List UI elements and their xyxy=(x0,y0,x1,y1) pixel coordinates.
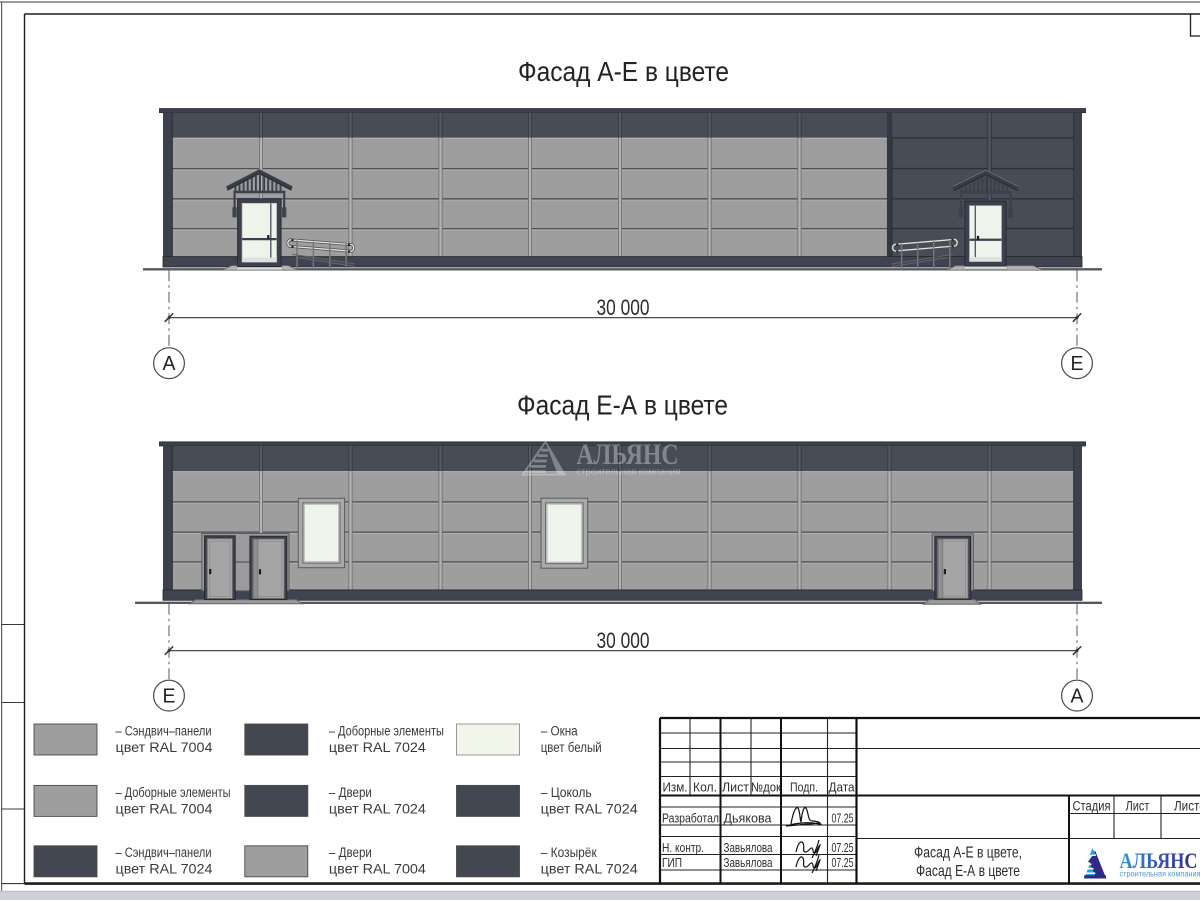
svg-text:07.25: 07.25 xyxy=(832,841,854,855)
svg-text:07.25: 07.25 xyxy=(832,856,854,870)
svg-text:30 000: 30 000 xyxy=(597,295,650,320)
svg-text:цвет RAL 7024: цвет RAL 7024 xyxy=(329,801,427,816)
svg-text:цвет RAL 7004: цвет RAL 7004 xyxy=(116,801,214,816)
svg-text:№док: №док xyxy=(751,779,781,794)
svg-text:цвет RAL 7004: цвет RAL 7004 xyxy=(329,862,427,877)
svg-text:– Двери: – Двери xyxy=(329,845,372,860)
svg-text:Фасад Е-А в цвете: Фасад Е-А в цвете xyxy=(517,390,728,421)
svg-text:Фасад А-Е в цвете,: Фасад А-Е в цвете, xyxy=(914,845,1022,862)
svg-text:Дата: Дата xyxy=(829,779,856,794)
svg-text:цвет RAL 7024: цвет RAL 7024 xyxy=(541,862,639,877)
svg-text:Листов: Листов xyxy=(1174,798,1200,813)
svg-text:цвет RAL 7024: цвет RAL 7024 xyxy=(541,801,639,816)
svg-text:– Сэндвич–панели: – Сэндвич–панели xyxy=(116,845,212,860)
svg-text:цвет RAL 7004: цвет RAL 7004 xyxy=(116,740,214,755)
svg-text:– Окна: – Окна xyxy=(541,723,578,738)
svg-text:ГИП: ГИП xyxy=(662,856,682,870)
svg-text:Завьялова: Завьялова xyxy=(724,841,773,855)
svg-text:цвет RAL 7024: цвет RAL 7024 xyxy=(329,740,427,755)
svg-text:строительная компания: строительная компания xyxy=(577,467,681,477)
svg-text:Фасад А-Е в цвете: Фасад А-Е в цвете xyxy=(518,56,729,87)
svg-text:– Доборные элементы: – Доборные элементы xyxy=(116,785,231,800)
svg-text:цвет белый: цвет белый xyxy=(541,740,602,755)
svg-text:Изм.: Изм. xyxy=(663,779,688,794)
svg-text:А: А xyxy=(1071,685,1084,708)
svg-text:– Доборные элементы: – Доборные элементы xyxy=(329,723,444,738)
svg-text:Завьялова: Завьялова xyxy=(724,856,773,870)
svg-text:А: А xyxy=(163,352,176,375)
svg-text:– Козырёк: – Козырёк xyxy=(541,845,597,860)
svg-text:Разработал: Разработал xyxy=(662,812,719,826)
svg-text:Н. контр.: Н. контр. xyxy=(662,841,704,855)
svg-text:цвет RAL 7024: цвет RAL 7024 xyxy=(116,862,214,877)
svg-text:Е: Е xyxy=(163,685,176,708)
svg-text:– Двери: – Двери xyxy=(329,785,372,800)
svg-text:Дьякова: Дьякова xyxy=(724,812,772,826)
svg-text:Фасад Е-А в цвете: Фасад Е-А в цвете xyxy=(916,863,1020,880)
svg-text:Подп.: Подп. xyxy=(790,779,818,794)
svg-text:Е: Е xyxy=(1071,352,1084,375)
svg-text:Лист: Лист xyxy=(1126,798,1150,813)
svg-text:– Цоколь: – Цоколь xyxy=(541,785,592,800)
svg-text:строительная компания: строительная компания xyxy=(1120,870,1200,879)
svg-text:07.25: 07.25 xyxy=(832,812,854,826)
svg-text:Кол.: Кол. xyxy=(693,779,717,794)
svg-text:30 000: 30 000 xyxy=(597,628,650,653)
svg-text:– Сэндвич–панели: – Сэндвич–панели xyxy=(116,723,212,738)
svg-text:Лист: Лист xyxy=(722,779,749,794)
svg-text:Стадия: Стадия xyxy=(1073,798,1111,813)
